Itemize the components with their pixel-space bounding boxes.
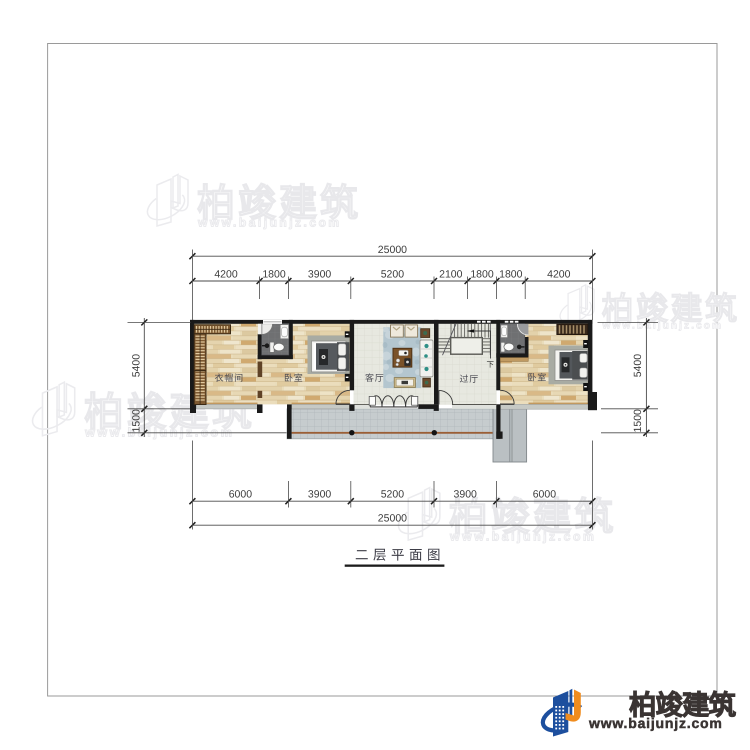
svg-text:www.baijunjz.com: www.baijunjz.com	[588, 715, 723, 731]
svg-text:卧室: 卧室	[284, 373, 304, 383]
svg-text:客厅: 客厅	[365, 373, 385, 383]
svg-text:过厅: 过厅	[460, 374, 480, 384]
svg-text:25000: 25000	[378, 244, 407, 256]
svg-text:1800: 1800	[262, 269, 286, 281]
svg-text:1800: 1800	[499, 269, 523, 281]
svg-text:5400: 5400	[131, 354, 143, 378]
svg-text:25000: 25000	[378, 513, 407, 525]
svg-text:卧室: 卧室	[528, 373, 548, 383]
svg-text:1500: 1500	[632, 409, 644, 433]
svg-text:1800: 1800	[470, 269, 494, 281]
svg-text:2100: 2100	[439, 269, 463, 281]
svg-text:5400: 5400	[632, 354, 644, 378]
svg-text:4200: 4200	[214, 269, 238, 281]
svg-text:二层平面图: 二层平面图	[355, 548, 445, 563]
svg-text:3900: 3900	[454, 489, 478, 501]
svg-text:6000: 6000	[533, 489, 557, 501]
svg-text:5200: 5200	[381, 269, 405, 281]
svg-text:1500: 1500	[131, 409, 143, 433]
svg-text:3900: 3900	[308, 269, 332, 281]
svg-text:4200: 4200	[547, 269, 571, 281]
svg-text:5200: 5200	[381, 489, 405, 501]
svg-text:6000: 6000	[229, 489, 253, 501]
svg-text:衣帽间: 衣帽间	[215, 373, 244, 383]
svg-text:下: 下	[487, 360, 495, 369]
svg-text:3900: 3900	[308, 489, 332, 501]
